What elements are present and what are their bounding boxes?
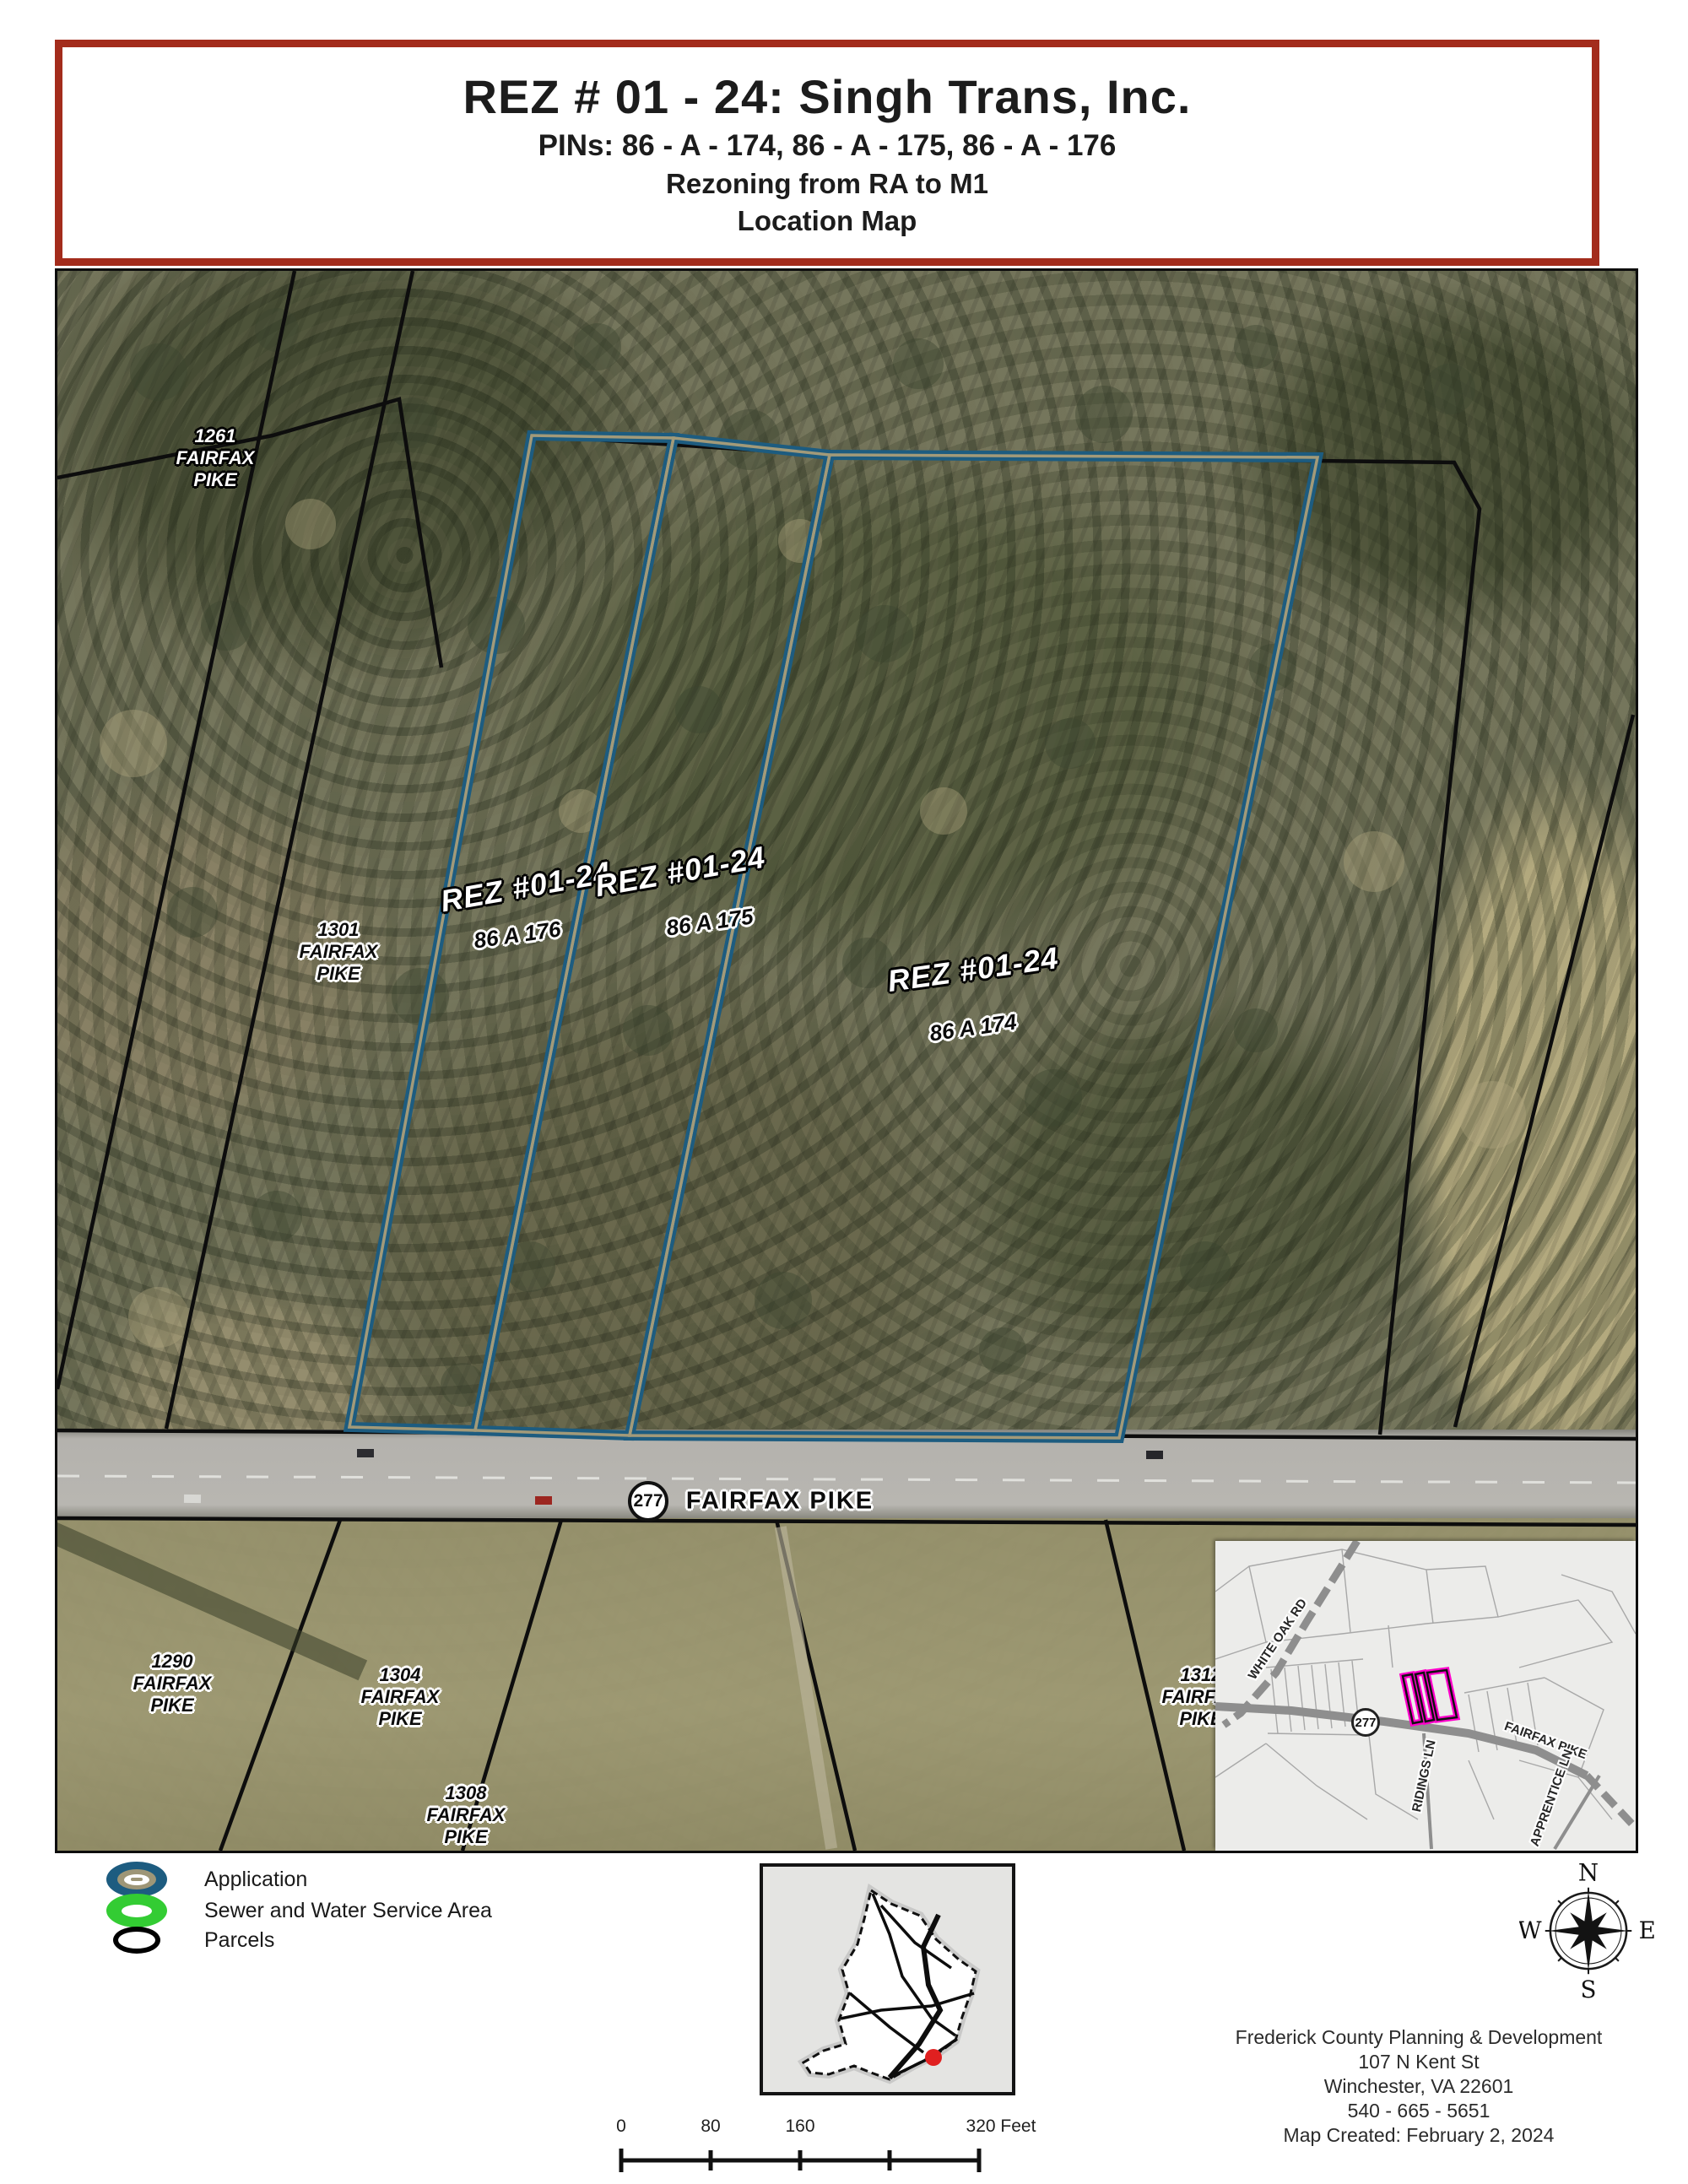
- compass-e: E: [1639, 1916, 1656, 1944]
- sewer-water-symbol: [106, 1894, 167, 1927]
- inset-application-highlight: [1403, 1670, 1457, 1723]
- compass-rose: N S E W: [1519, 1862, 1658, 2000]
- address-label-1261: 1261FAIRFAXPIKE: [176, 425, 255, 491]
- agency-credits: Frederick County Planning & Development …: [1215, 2025, 1622, 2148]
- credits-agency: Frederick County Planning & Development: [1215, 2025, 1622, 2050]
- legend-label-application: Application: [204, 1868, 307, 1892]
- title-rezoning: Rezoning from RA to M1: [666, 168, 988, 200]
- compass-s: S: [1581, 1976, 1597, 2000]
- scale-tick-320: 320 Feet: [966, 2116, 1036, 2137]
- scale-tick-80: 80: [701, 2116, 720, 2137]
- tree-canopy-blobs: [130, 308, 1475, 1407]
- compass-w: W: [1519, 1916, 1542, 1944]
- compass-n: N: [1578, 1862, 1599, 1887]
- application-symbol: [106, 1862, 167, 1897]
- title-map-type: Location Map: [738, 205, 917, 237]
- scale-bar-graphic: [613, 2143, 1018, 2177]
- parcels-symbol: [106, 1926, 167, 1954]
- compass-rose-icon: N S E W: [1519, 1862, 1658, 2000]
- address-label-1308: 1308FAIRFAXPIKE: [427, 1782, 506, 1848]
- fairfax-pike-road-label: FAIRFAX PIKE: [686, 1488, 874, 1516]
- county-locator-inset: [760, 1863, 1015, 2095]
- scale-tick-0: 0: [616, 2116, 626, 2137]
- legend-item-sewer: Sewer and Water Service Area: [106, 1894, 492, 1927]
- credits-date: Map Created: February 2, 2024: [1215, 2123, 1622, 2148]
- inset-route-277-shield: 277: [1351, 1708, 1380, 1737]
- credits-phone: 540 - 665 - 5651: [1215, 2099, 1622, 2123]
- address-label-1290: 1290FAIRFAXPIKE: [133, 1651, 212, 1716]
- credits-city: Winchester, VA 22601: [1215, 2074, 1622, 2099]
- street-inset-graphics: [1215, 1541, 1636, 1851]
- legend-label-sewer: Sewer and Water Service Area: [204, 1899, 492, 1923]
- scale-tick-160: 160: [785, 2116, 814, 2137]
- scale-bar: [613, 2143, 1018, 2177]
- route-277-shield: 277: [628, 1481, 668, 1522]
- legend-item-application: Application: [106, 1862, 307, 1897]
- credits-street: 107 N Kent St: [1215, 2050, 1622, 2074]
- legend-item-parcels: Parcels: [106, 1926, 274, 1954]
- location-dot: [925, 2049, 942, 2066]
- legend-label-parcels: Parcels: [204, 1928, 274, 1953]
- address-label-1304: 1304FAIRFAXPIKE: [361, 1664, 440, 1730]
- aerial-location-map: 1261FAIRFAXPIKE 1301FAIRFAXPIKE 1290FAIR…: [55, 268, 1638, 1853]
- map-title: REZ # 01 - 24: Singh Trans, Inc.: [463, 69, 1192, 124]
- title-box: REZ # 01 - 24: Singh Trans, Inc. PINs: 8…: [55, 40, 1599, 266]
- title-pins: PINs: 86 - A - 174, 86 - A - 175, 86 - A…: [538, 129, 1117, 163]
- county-locator-graphics: [763, 1867, 1012, 2092]
- street-inset-map: WHITE OAK RD FAIRFAX PIKE RIDINGS LN APP…: [1215, 1541, 1636, 1851]
- address-label-1301: 1301FAIRFAXPIKE: [300, 919, 378, 985]
